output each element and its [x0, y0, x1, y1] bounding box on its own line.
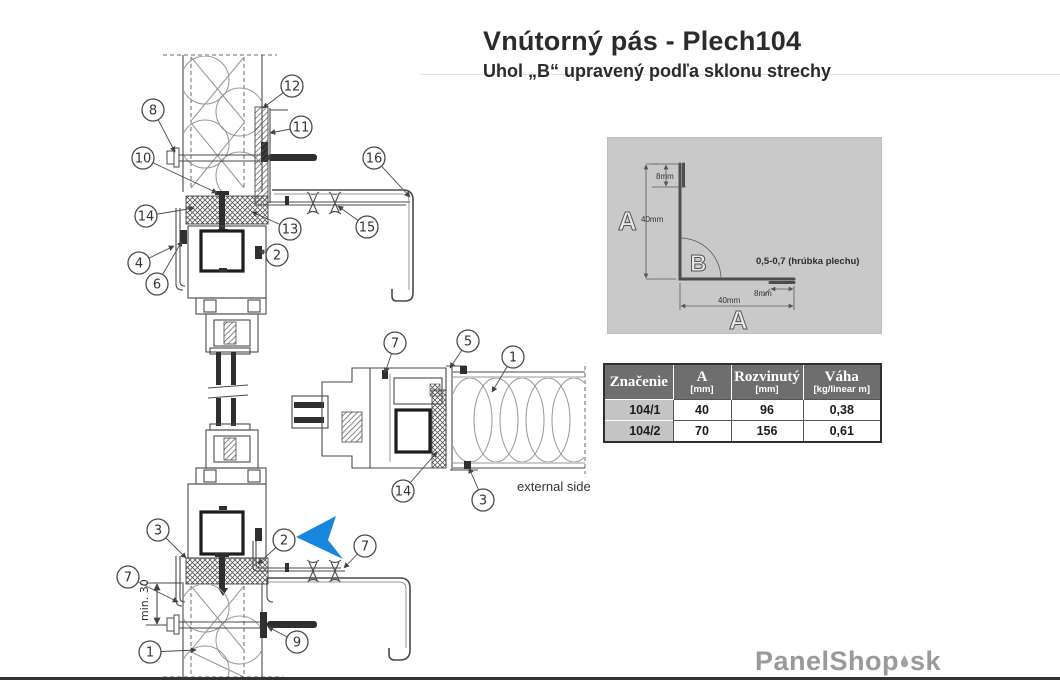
svg-text:3: 3: [154, 524, 162, 539]
svg-text:9: 9: [293, 636, 301, 651]
top-anchor-bolt: [167, 142, 317, 167]
row-label: 104/2: [604, 421, 673, 443]
letter-b-angle: B: [690, 250, 707, 276]
thickness-note: 0,5-0,7 (hrúbka plechu): [756, 256, 859, 267]
svg-text:2: 2: [280, 534, 288, 549]
callout-4: 4: [128, 246, 174, 274]
table-row: 104/1 40 96 0,38: [604, 400, 881, 421]
logo-tld: sk: [910, 646, 941, 677]
logo-text: PanelShop: [755, 646, 899, 677]
callout-15: 15: [338, 206, 378, 238]
profile-diagram: 8mm 40mm 40mm 8mm A A B 0,5-0,7 (hrúbka …: [607, 137, 882, 334]
svg-text:7: 7: [361, 540, 369, 555]
header-a: A[mm]: [673, 364, 731, 400]
panelshop-logo: PanelShopsk: [755, 644, 941, 677]
spec-table-header-row: Značenie A[mm] Rozvinutý[mm] Váha[kg/lin…: [604, 364, 881, 400]
header-znacenie: Značenie: [604, 364, 673, 400]
header-vaha: Váha[kg/linear m]: [803, 364, 881, 400]
compression-tape-icon: [307, 192, 341, 214]
svg-text:8: 8: [149, 104, 157, 119]
callout-9: 9: [268, 627, 308, 653]
letter-a-bottom: A: [729, 305, 748, 333]
profile-diagram-svg: 8mm 40mm 40mm 8mm A A B 0,5-0,7 (hrúbka …: [608, 138, 881, 333]
callout-8: 8: [142, 99, 175, 152]
page-subtitle: Uhol „B“ upravený podľa sklonu strechy: [483, 61, 1043, 82]
callout-3: 3: [147, 519, 186, 558]
letter-a-left: A: [618, 206, 637, 236]
hem-top-dim: 8mm: [656, 172, 674, 181]
callout-1: 1: [139, 641, 196, 663]
svg-text:3: 3: [479, 494, 487, 509]
callout-2: 2: [259, 244, 288, 266]
plan-wall-panel: external side: [446, 366, 596, 494]
plan-window-section: [292, 368, 446, 468]
callout-14: 14: [135, 205, 194, 227]
hem-right-dim: 8mm: [754, 289, 772, 298]
callout-14: 14: [392, 452, 437, 502]
spec-table: Značenie A[mm] Rozvinutý[mm] Váha[kg/lin…: [603, 363, 882, 443]
technical-drawing: min. 30: [0, 0, 1060, 680]
svg-text:1: 1: [146, 646, 154, 661]
svg-text:14: 14: [138, 210, 155, 225]
page-title: Vnútorný pás - Plech104: [483, 26, 1043, 57]
svg-text:11: 11: [293, 121, 310, 136]
pointer-arrow: [296, 516, 343, 559]
table-row: 104/2 70 156 0,61: [604, 421, 881, 443]
svg-text:2: 2: [273, 249, 281, 264]
svg-text:7: 7: [391, 337, 399, 352]
flame-icon: [900, 644, 909, 675]
svg-text:5: 5: [464, 335, 472, 350]
callout-3: 3: [469, 468, 494, 511]
svg-text:12: 12: [284, 80, 301, 95]
top-internal-strip: [268, 192, 410, 214]
horizontal-leg-dim: 40mm: [718, 296, 741, 305]
svg-text:4: 4: [135, 257, 143, 272]
title-block: Vnútorný pás - Plech104 Uhol „B“ upraven…: [483, 26, 1043, 82]
svg-text:15: 15: [359, 221, 376, 236]
svg-text:6: 6: [153, 278, 161, 293]
callout-2: 2: [258, 529, 295, 564]
top-c-profile: [272, 190, 413, 301]
glass-pane: [208, 352, 248, 426]
svg-text:10: 10: [135, 152, 152, 167]
svg-text:1: 1: [509, 351, 517, 366]
svg-text:13: 13: [282, 223, 299, 238]
drawing-sheet: min. 30: [0, 0, 1060, 680]
callout-7: 7: [384, 332, 406, 373]
svg-text:7: 7: [124, 571, 132, 586]
callout-12: 12: [263, 75, 303, 108]
svg-text:16: 16: [366, 152, 383, 167]
callout-11: 11: [270, 116, 312, 138]
top-window-frame: [176, 208, 266, 354]
svg-text:14: 14: [395, 485, 412, 500]
vertical-leg-dim: 40mm: [641, 215, 664, 224]
header-rozvinuty: Rozvinutý[mm]: [731, 364, 803, 400]
external-side-label: external side: [517, 479, 591, 494]
callout-7: 7: [344, 535, 376, 568]
row-label: 104/1: [604, 400, 673, 421]
callout-5: 5: [450, 330, 479, 368]
